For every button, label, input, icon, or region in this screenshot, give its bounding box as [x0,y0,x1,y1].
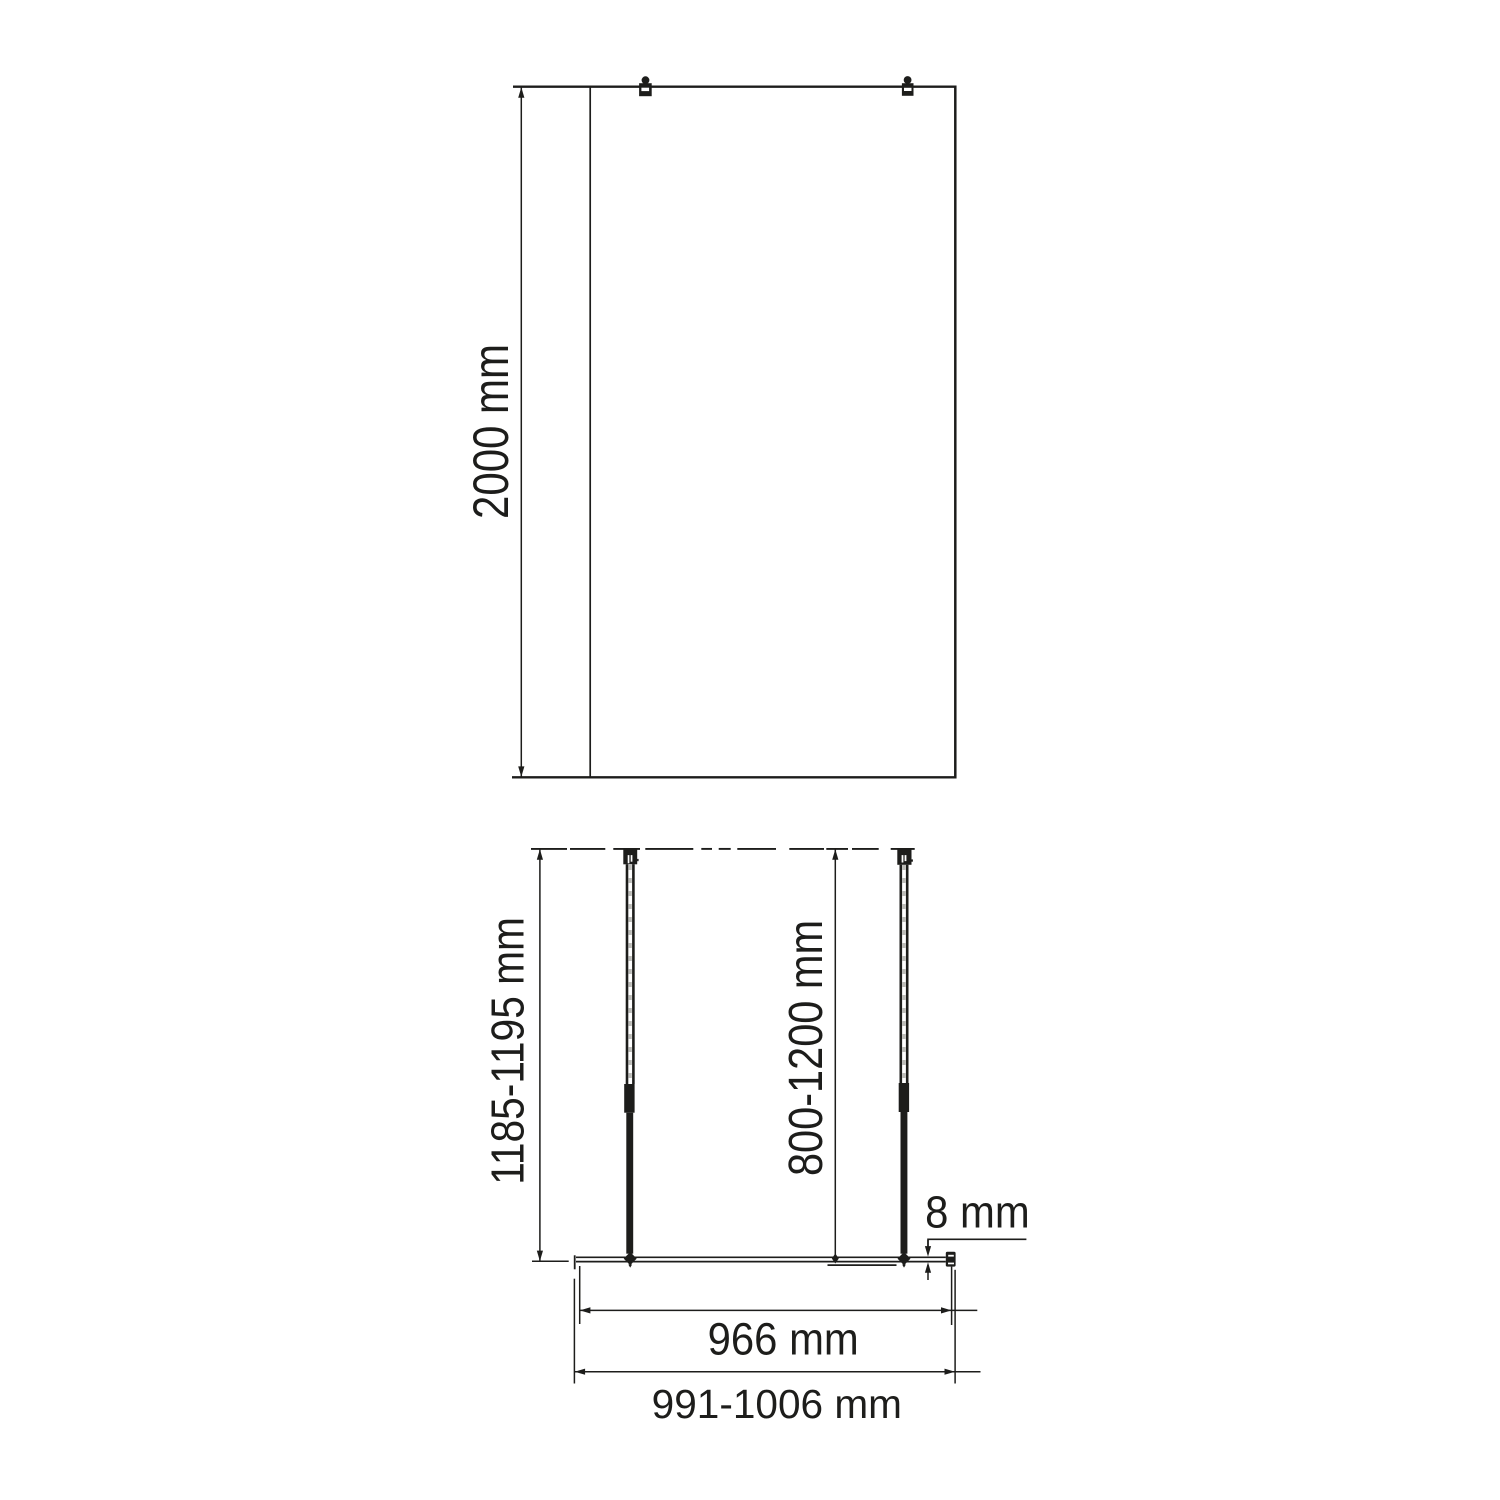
svg-text:991-1006 mm: 991-1006 mm [652,1381,902,1427]
svg-text:2000 mm: 2000 mm [463,344,519,519]
svg-text:8 mm: 8 mm [925,1188,1030,1238]
svg-text:966 mm: 966 mm [708,1315,859,1365]
svg-text:800-1200 mm: 800-1200 mm [778,920,833,1176]
svg-text:1185-1195 mm: 1185-1195 mm [483,917,534,1185]
